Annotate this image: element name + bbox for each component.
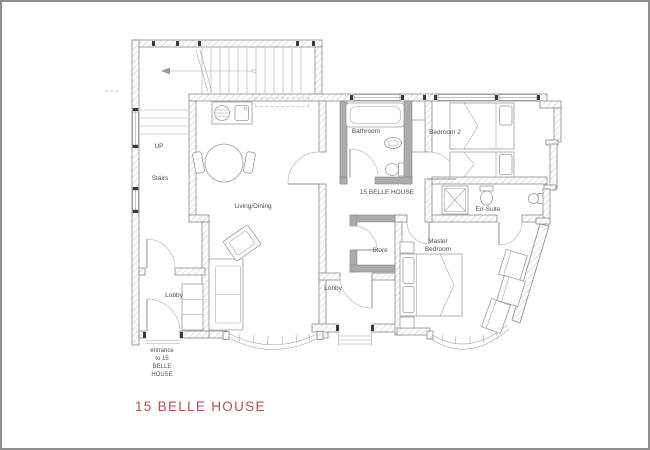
master-bed bbox=[400, 254, 462, 316]
stair-direction-arrow bbox=[161, 68, 256, 75]
store-walls bbox=[350, 215, 395, 272]
label-bathroom: Bathroom bbox=[352, 128, 380, 135]
label-master-line1: Master bbox=[428, 238, 449, 245]
label-en-suite: En-Suite bbox=[476, 206, 501, 213]
label-up: UP bbox=[154, 143, 163, 150]
sofa bbox=[209, 259, 243, 330]
bathtub bbox=[346, 103, 404, 127]
label-hall-15-belle-house: 15 BELLE HOUSE bbox=[360, 189, 415, 196]
kitchen-unit bbox=[212, 102, 252, 124]
bedroom2-bed-1 bbox=[450, 103, 514, 149]
label-living-dining: Living/Dining bbox=[234, 203, 272, 210]
entrance-note: entrance to 15 BELLE HOUSE bbox=[150, 348, 174, 378]
entrance-note-line3: BELLE bbox=[153, 364, 172, 370]
lobby-cupboard bbox=[182, 284, 203, 330]
floor-plan-drawing: UP Stairs Living/Dining Bathroom Bedroom… bbox=[2, 2, 650, 448]
hall-cupboard bbox=[412, 120, 425, 152]
entrance-note-line1: entrance bbox=[150, 348, 174, 354]
dining-table bbox=[192, 144, 256, 182]
label-stairs: Stairs bbox=[152, 175, 169, 182]
inner-porch-steps bbox=[339, 332, 372, 346]
bathroom-toilet bbox=[386, 163, 405, 176]
bedroom2-bed-2 bbox=[450, 152, 514, 177]
shower bbox=[442, 186, 468, 214]
bathroom-basin bbox=[385, 138, 402, 149]
entrance-threshold bbox=[145, 341, 180, 344]
label-lobby-main: Lobby bbox=[165, 292, 183, 299]
label-master-line2: Bedroom bbox=[425, 246, 451, 253]
bay-window-living bbox=[223, 332, 323, 350]
floor-plan-page: UP Stairs Living/Dining Bathroom Bedroom… bbox=[0, 0, 650, 450]
ensuite-basin bbox=[529, 194, 544, 204]
label-bedroom-2: Bedroom 2 bbox=[429, 129, 461, 136]
label-lobby-inner: Lobby bbox=[324, 285, 342, 292]
entrance-note-line2: to 15 bbox=[155, 356, 169, 362]
plan-title: 15 BELLE HOUSE bbox=[135, 399, 266, 414]
label-store: Store bbox=[372, 247, 388, 254]
armchair bbox=[223, 225, 261, 262]
entrance-note-line4: HOUSE bbox=[151, 372, 172, 378]
ensuite-toilet bbox=[480, 186, 493, 205]
